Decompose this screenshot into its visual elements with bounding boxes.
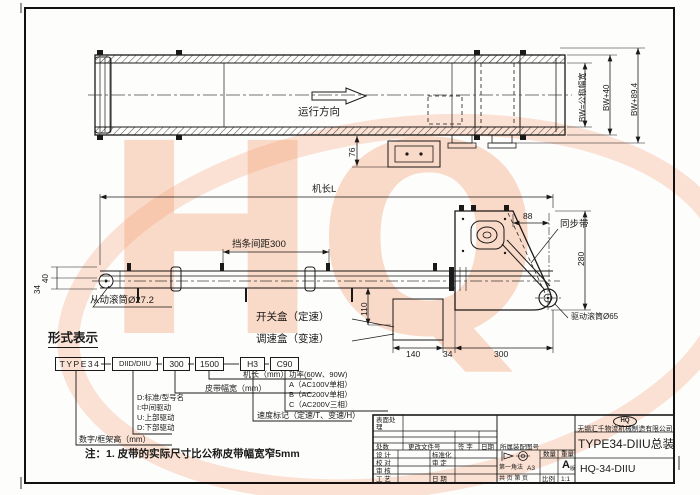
width-label: 皮带幅宽（mm） [205,384,266,393]
code-box-type34: TYPE34 [55,357,105,371]
dim-140: 140 [406,350,420,360]
power-opt-1: 功率(60W、90W) [289,371,347,380]
driven-roller-label: 从动滚筒Ø27.2 [90,296,154,307]
company-name: 无锡汇千物流机械制造有限公司 [577,426,673,433]
tb-sheet-size: A3 [527,465,535,472]
tb-design: 设 计 [376,452,391,459]
dim-bw-plus-40: BW+40 [602,85,611,111]
tb-surface-treatment: 表面处理 [376,417,401,431]
form-heading: 形式表示 [48,331,98,348]
tb-rev-doc: 更改文件号 [408,444,441,451]
dim-40: 40 [41,274,50,283]
tb-process: 工 艺 [376,476,391,483]
dim-88: 88 [523,212,532,222]
code-box-speed: H3 [240,357,265,371]
code-box-power: C90 [270,357,299,371]
tb-scale-value: 1:1 [561,476,570,483]
tb-standard: 标准化 [432,452,452,459]
code-box-length: 1500 [195,357,224,371]
dim-bw-plus-89: BW+89.4 [630,83,639,116]
power-opt-4: C（AC200V三相） [289,401,352,410]
code-box-drive: DIID/DIIU [112,357,158,371]
tb-pages: 共 页 第 页 [499,476,528,483]
dim-280: 280 [576,252,586,266]
tb-approve: 审 定 [432,460,447,467]
dim-bw-nominal-width: BW=公称幅宽 [577,72,588,122]
drive-roller-label: 驱动滚筒Ø65 [571,312,618,321]
tb-scale-label: 比例 [542,476,555,483]
len-label: 机长（mm） [243,370,288,379]
sync-belt-label: 同步带 [560,220,589,231]
dim-76: 76 [347,148,357,157]
tb-rev-count: 处数 [376,444,389,451]
tb-rev-date: 日期 [481,444,494,451]
drawing-number: HQ-34-DIIU [580,464,635,476]
drawing-title: TYPE34-DIIU总装图 [578,438,673,451]
engineering-drawing-sheet: 运行方向 76 BW=公称幅宽 BW+40 BW+89.4 机长L 挡条间距30… [0,0,700,495]
dim-baffle-pitch: 挡条间距300 [232,240,286,251]
dim-34b: 34 [443,350,452,360]
tb-review: 审 核 [376,468,391,475]
drawing-linework [0,0,700,495]
tb-rev-sign: 签 字 [458,444,473,451]
drive-opt-3: U:上部驱动 [137,414,175,423]
code-box-width: 300 [163,357,190,371]
dim-34: 34 [33,285,42,294]
drive-opt-2: I:中间驱动 [137,404,171,413]
power-opt-2: A（AC100V单相） [289,381,352,390]
power-opt-3: B（AC200V单相） [289,391,352,400]
tb-weight: 重量 [561,451,574,458]
dim-300: 300 [494,350,508,360]
speed-box-label: 调速盒（变速） [256,333,330,345]
tb-qty: 数量 [543,451,556,458]
tb-rev-letter: A [562,459,570,471]
dim-110: 110 [359,302,369,316]
running-direction-label: 运行方向 [298,106,340,118]
frame-label: 数字/框架高（mm） [79,435,151,444]
drive-opt-4: D:下部驱动 [137,424,175,433]
dim-machine-length: 机长L [312,185,336,196]
tb-rev-word: 版 [570,467,575,473]
note-text: 注：1. 皮带的实际尺寸比公称皮带幅宽窄5mm [85,448,300,460]
speed-label: 速度标记（定速/T、变速/H） [257,411,360,420]
drive-opt-1: D:标准/型号名 [137,394,184,403]
tb-projection: 第一角法 [499,465,523,472]
tb-sub-assembly: 所属装配图号 [500,444,539,451]
tb-check: 校 对 [376,460,391,467]
switch-box-label: 开关盒（定速） [256,311,330,323]
tb-date: 日 期 [432,476,447,483]
